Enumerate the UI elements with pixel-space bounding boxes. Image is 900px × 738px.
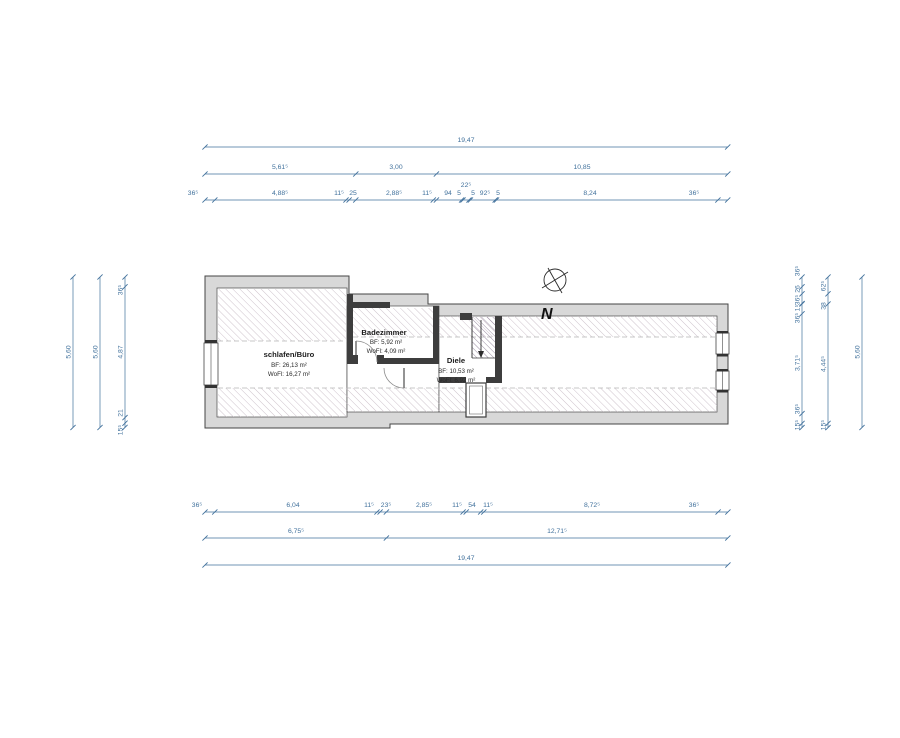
- hatch-schlafen-top: [218, 289, 346, 341]
- room-area-diele-wofl: WoFl: 6,92 m²: [437, 377, 476, 384]
- north-label: N: [541, 306, 553, 323]
- dim-label: 15⁵: [118, 425, 125, 436]
- room-area-diele-bf: BF: 10,53 m²: [438, 368, 474, 375]
- dim-label: 36⁵: [192, 502, 203, 509]
- window-right-2: [716, 369, 729, 393]
- dim-label: 11⁵: [452, 502, 462, 509]
- dim-label: 36⁵: [689, 502, 700, 509]
- dim-label: 11⁵: [422, 190, 432, 197]
- floor-plan-page: N schlafen/Büro BF: 26,13 m² WoFl: 16,27…: [0, 0, 900, 738]
- dim-label: 12,71⁵: [547, 528, 567, 535]
- dim-label: 11⁵: [334, 190, 344, 197]
- dim-label: 5,60: [93, 345, 100, 358]
- dim-label: 36⁵: [118, 285, 125, 296]
- dim-label: 2,85⁵: [416, 502, 432, 509]
- hatch-passage-bottom: [347, 388, 466, 412]
- dim-label: 8,24: [583, 190, 596, 197]
- dim-label: 5: [496, 190, 500, 197]
- window-left: [204, 340, 218, 388]
- dim-label: 25: [349, 190, 357, 197]
- dim-label: 36⁵: [689, 190, 700, 197]
- dim-label: 23⁵: [381, 502, 392, 509]
- dim-label: 36⁵: [795, 266, 802, 277]
- dim-label: 38: [821, 302, 828, 310]
- room-area-schlafen-wofl: WoFl: 16,27 m²: [268, 371, 310, 378]
- north-arrow-icon: [542, 268, 568, 293]
- dim-label: 11⁵: [364, 502, 374, 509]
- dim-label: 5,61⁵: [272, 164, 288, 171]
- dim-label: 4,44⁵: [821, 356, 828, 372]
- floor-plan-svg: N schlafen/Büro BF: 26,13 m² WoFl: 16,27…: [0, 0, 900, 738]
- dim-label: 36⁵: [795, 404, 802, 415]
- dim-label: 54: [468, 502, 476, 509]
- dim-label: 15⁵: [821, 420, 828, 431]
- room-area-badezimmer-bf: BF: 5,92 m²: [370, 339, 402, 346]
- dim-label: 8,72⁵: [584, 502, 600, 509]
- dim-label: 5: [471, 190, 475, 197]
- dim-label: 36⁵: [795, 313, 802, 324]
- dim-label: 6,75⁵: [288, 528, 304, 535]
- room-label-schlafen: schlafen/Büro: [264, 350, 315, 359]
- dim-label: 11⁵: [483, 502, 493, 509]
- dim-label: 92⁵: [480, 190, 491, 197]
- hatch-right-top: [502, 316, 717, 337]
- dim-label: 22⁵: [461, 182, 472, 189]
- dim-label: 4,87: [118, 345, 125, 358]
- dim-label: 2,88⁵: [386, 190, 402, 197]
- dim-label: 19,47: [457, 555, 474, 562]
- stair: [472, 317, 495, 358]
- dim-label: 26: [795, 285, 802, 293]
- dim-label: 62⁵: [821, 281, 828, 292]
- dim-label: 36⁵: [795, 295, 802, 306]
- dim-label: 19,47: [457, 137, 474, 144]
- dim-label: 4,88⁵: [272, 190, 288, 197]
- room-area-badezimmer-wofl: WoFl: 4,09 m²: [367, 348, 406, 355]
- window-right-1: [716, 331, 729, 357]
- dim-label: 5,60: [855, 345, 862, 358]
- room-label-diele: Diele: [447, 356, 465, 365]
- dim-label: 3,00: [389, 164, 402, 171]
- dim-label: 21: [118, 409, 125, 417]
- room-label-badezimmer: Badezimmer: [361, 328, 406, 337]
- dim-label: 5,60: [66, 345, 73, 358]
- dim-label: 36⁵: [188, 190, 199, 197]
- room-area-schlafen-bf: BF: 26,13 m²: [271, 362, 307, 369]
- dim-label: 3,71⁵: [795, 355, 802, 371]
- dim-label: 1⁵: [795, 305, 802, 312]
- hatch-schlafen-bottom: [218, 388, 347, 417]
- hatch-right-bottom: [486, 388, 717, 412]
- dim-label: 5: [457, 190, 461, 197]
- dim-label: 10,85: [573, 164, 590, 171]
- dim-label: 6,04: [286, 502, 299, 509]
- entrance-door: [466, 383, 486, 417]
- dim-label: 15⁵: [795, 420, 802, 431]
- dim-label: 94: [444, 190, 452, 197]
